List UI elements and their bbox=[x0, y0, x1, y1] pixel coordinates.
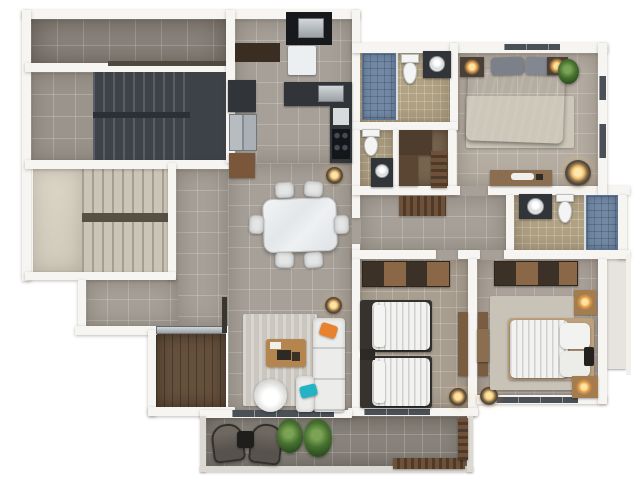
twin-nightstand bbox=[360, 349, 375, 360]
kitchen-tall-unit bbox=[228, 80, 256, 112]
wall-central-east-upper bbox=[352, 10, 360, 130]
balcony-plant-2 bbox=[304, 419, 332, 457]
stairs-beige-gap bbox=[82, 213, 168, 222]
stairs-dark-lower-flight bbox=[93, 118, 190, 160]
candle-twin bbox=[449, 388, 467, 406]
master-desk-tray bbox=[511, 173, 534, 180]
wall-left-lower bbox=[78, 280, 86, 330]
kitchen-shaft-vent bbox=[298, 18, 324, 38]
wall-left bbox=[22, 10, 31, 281]
dining-table bbox=[262, 197, 338, 254]
wall-central-east-mid bbox=[352, 130, 360, 218]
master-pillow-1 bbox=[491, 56, 525, 75]
wall-master-east bbox=[598, 43, 607, 195]
double-dresser bbox=[477, 329, 489, 362]
elevator-door bbox=[156, 326, 226, 334]
door-gap-central bbox=[352, 218, 360, 244]
hallway-bench bbox=[399, 196, 446, 216]
stairs-dark-upper-flight bbox=[93, 72, 190, 112]
dining-chair-5 bbox=[249, 215, 265, 235]
kitchen-upper-cabinets bbox=[235, 43, 280, 62]
door-gap-double bbox=[478, 250, 506, 259]
door-gap-master bbox=[460, 186, 488, 195]
dining-chair-1 bbox=[275, 182, 295, 199]
hall-floor bbox=[86, 278, 178, 326]
hall-pillar bbox=[222, 297, 227, 333]
stairs-beige-lower-flight bbox=[82, 222, 168, 272]
master-window-1 bbox=[599, 76, 606, 100]
master-bed-duvet bbox=[466, 68, 565, 143]
master-lamp-glow-1 bbox=[464, 59, 480, 75]
wall-hall-south bbox=[75, 326, 157, 335]
wall-bath1-east bbox=[450, 43, 458, 130]
coffee-table-book bbox=[270, 342, 281, 349]
wall-bedroom-divider bbox=[468, 259, 477, 416]
master-desk-item bbox=[536, 174, 543, 180]
sink1 bbox=[429, 56, 445, 72]
kitchen-white-unit bbox=[288, 46, 316, 75]
shower1-tiles bbox=[362, 53, 396, 120]
balcony-planter-side bbox=[458, 418, 468, 460]
door-gap-twin bbox=[434, 250, 460, 259]
dining-chair-2 bbox=[303, 180, 323, 197]
master-plant bbox=[558, 59, 579, 84]
fridge bbox=[229, 114, 257, 151]
wall-bedrooms-top-c bbox=[504, 250, 630, 259]
coffee-table-deco bbox=[292, 352, 300, 361]
divider-wardrobe-panel-left bbox=[458, 312, 468, 376]
dining-chair-3 bbox=[275, 252, 295, 269]
candle-master bbox=[565, 160, 591, 186]
closet-shelf-top bbox=[399, 130, 432, 155]
east-ledge bbox=[607, 259, 626, 369]
east-ledge-edge bbox=[626, 255, 631, 375]
wall-hallway-bath3 bbox=[506, 195, 514, 250]
shower1-glass bbox=[396, 53, 398, 120]
sink3 bbox=[527, 198, 544, 215]
stairs-beige-upper-flight bbox=[82, 169, 168, 213]
parapet-west bbox=[200, 416, 206, 472]
wall-double-east bbox=[598, 259, 607, 404]
shower3-tiles bbox=[586, 195, 618, 250]
twin-bed1-pillow bbox=[374, 305, 385, 347]
double-bed-item bbox=[584, 347, 594, 366]
dining-chair-4 bbox=[303, 251, 323, 268]
floor-plan-canvas bbox=[0, 0, 640, 485]
closet-ladder bbox=[431, 151, 447, 188]
balcony-table bbox=[237, 431, 254, 448]
wall-stairhall-south bbox=[25, 160, 230, 169]
entry-door-track bbox=[108, 61, 228, 66]
stairs-dark-side-landing bbox=[190, 72, 226, 160]
twin-wardrobe bbox=[362, 261, 450, 287]
elevator-floor bbox=[156, 334, 226, 407]
coffee-table-tray bbox=[277, 350, 291, 360]
wall-bedrooms-top-a bbox=[352, 250, 436, 259]
double-lamp-glow-1 bbox=[577, 294, 593, 310]
wall-bedrooms-top-b bbox=[458, 250, 480, 259]
candle-living bbox=[325, 297, 342, 314]
wall-elevator-west bbox=[148, 330, 156, 416]
kitchen-sink bbox=[318, 85, 344, 102]
master-window-2 bbox=[599, 124, 606, 158]
beige-stair-landing bbox=[33, 169, 82, 272]
wall-beige-east bbox=[168, 163, 176, 280]
closet-shelf-left bbox=[399, 155, 418, 186]
entry-corridor-floor bbox=[31, 19, 226, 63]
sink2 bbox=[375, 164, 389, 178]
mid-corridor-floor bbox=[176, 169, 228, 326]
wall-beige-south bbox=[25, 272, 176, 280]
balcony-plant-1 bbox=[277, 419, 303, 453]
double-lamp-glow-2 bbox=[576, 379, 592, 395]
kitchen-dish-rack bbox=[333, 108, 349, 125]
armchair-round bbox=[254, 379, 287, 412]
dining-chair-6 bbox=[334, 215, 350, 235]
wall-twin-west bbox=[352, 259, 360, 416]
twin-bed2-pillow bbox=[374, 361, 385, 403]
double-pillow-1 bbox=[560, 323, 590, 349]
master-window-top bbox=[504, 44, 560, 50]
twin-window bbox=[364, 409, 430, 415]
wall-rightwing-top bbox=[352, 43, 608, 53]
balcony-planter-long bbox=[393, 458, 465, 469]
double-wardrobe bbox=[494, 261, 578, 286]
stove bbox=[332, 129, 350, 159]
candle-dining bbox=[326, 167, 343, 184]
double-window bbox=[496, 397, 578, 403]
kitchen-wood-cabinet bbox=[229, 153, 255, 178]
